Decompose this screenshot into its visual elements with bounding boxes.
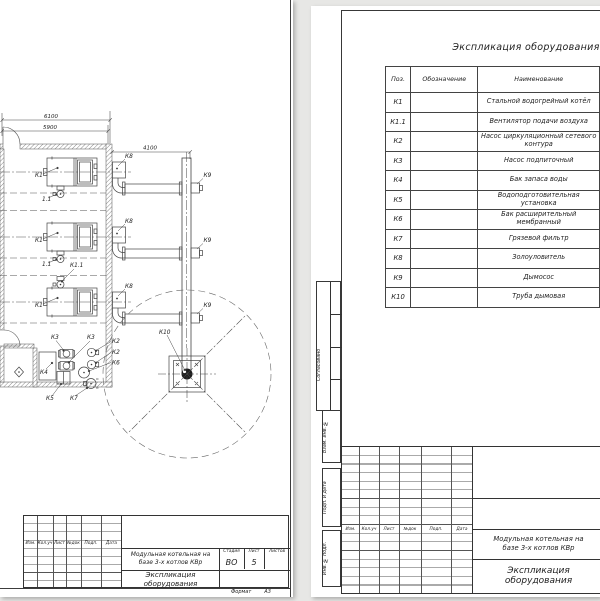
flue-system bbox=[113, 158, 203, 374]
label-k1-1: К1.1 bbox=[70, 263, 83, 269]
spec-name: Труба дымовая bbox=[478, 288, 600, 308]
project-title-line1: Модульная котельная на bbox=[131, 551, 211, 558]
rev-header-list: Лист bbox=[379, 525, 399, 534]
spec-name: Насос подпиточный bbox=[478, 151, 600, 171]
spec-designation bbox=[411, 132, 478, 152]
spec-pos: К2 bbox=[386, 132, 411, 152]
rev-header-podp: Подп. bbox=[421, 525, 451, 534]
doc-title: Экспликация оборудования bbox=[122, 570, 219, 589]
col-header-oboznachenie: Обозначение bbox=[411, 67, 478, 93]
project-title: Модульная котельная на базе 3-х котлов К… bbox=[475, 530, 600, 557]
axis-lines bbox=[0, 152, 187, 348]
dim-5900: 5900 bbox=[43, 125, 57, 131]
dim-6100: 6100 bbox=[44, 114, 58, 120]
label-k2: К2 bbox=[112, 339, 120, 345]
spec-pos: К4 bbox=[386, 171, 411, 191]
spec-pos: К9 bbox=[386, 268, 411, 288]
margin-block-inv-podl: Инв. № подл. bbox=[322, 530, 341, 587]
spec-pos: К5 bbox=[386, 190, 411, 210]
rev-header-ndok: №док bbox=[399, 525, 421, 534]
project-title: Модульная котельная на базе 3-х котлов К… bbox=[122, 549, 219, 569]
spec-table-title: Экспликация оборудования bbox=[426, 42, 600, 53]
spec-row: К9Дымосос bbox=[386, 268, 600, 288]
left-title-block: Изм. Кол.уч Лист №док Подп. Дата Модульн… bbox=[23, 515, 289, 588]
spec-name: Водоподготовительная установка bbox=[478, 190, 600, 210]
chimney bbox=[103, 290, 271, 458]
revision-table: Изм. Кол.уч Лист №док Подп. Дата bbox=[342, 447, 473, 593]
spec-designation bbox=[411, 268, 478, 288]
spec-pos: К8 bbox=[386, 249, 411, 269]
vzam-inv-label: Взам. инв. № bbox=[323, 411, 340, 462]
label-k10: К10 bbox=[159, 330, 171, 336]
spec-row: К3Насос подпиточный bbox=[386, 151, 600, 171]
spec-designation bbox=[411, 249, 478, 269]
spec-designation bbox=[411, 288, 478, 308]
sheets-label: Листов bbox=[264, 548, 290, 556]
margin-block-vzam-inv: Взам. инв. № bbox=[322, 410, 341, 463]
spec-row: К2Насос циркуляционный сетевого контура bbox=[386, 132, 600, 152]
soglasovano-label: Согласовано bbox=[317, 320, 330, 410]
dim-4100: 4100 bbox=[143, 146, 157, 152]
label-k5: К5 bbox=[46, 396, 54, 402]
stage-value: ВО bbox=[219, 556, 244, 570]
spec-pos: К6 bbox=[386, 210, 411, 230]
spec-name: Бак расширительный мембранный bbox=[478, 210, 600, 230]
spec-name: Вентилятор подачи воздуха bbox=[478, 112, 600, 132]
label-fan: 1.1 bbox=[42, 262, 51, 268]
format-label: Формат bbox=[231, 589, 251, 595]
spec-pos: К1.1 bbox=[386, 112, 411, 132]
label-k9: К9 bbox=[204, 173, 212, 179]
podp-data-label: Подп. и дата bbox=[323, 469, 340, 526]
spec-name: Бак запаса воды bbox=[478, 171, 600, 191]
sheet-plan: 6100 5900 4100 bbox=[0, 0, 293, 597]
margin-block-podp-data: Подп. и дата bbox=[322, 468, 341, 527]
spec-pos: К3 bbox=[386, 151, 411, 171]
rev-header-izm: Изм. bbox=[24, 540, 37, 548]
spec-pos: К7 bbox=[386, 229, 411, 249]
rev-header-izm: Изм. bbox=[342, 525, 359, 534]
rev-header-data: Дата bbox=[451, 525, 473, 534]
sheet-label: Лист bbox=[244, 548, 264, 556]
spec-row: К10Труба дымовая bbox=[386, 288, 600, 308]
spec-row: К4Бак запаса воды bbox=[386, 171, 600, 191]
spec-name: Золоуловитель bbox=[478, 249, 600, 269]
project-title-line2: базе 3-х котлов КВр bbox=[503, 544, 575, 552]
revision-table: Изм. Кол.уч Лист №док Подп. Дата bbox=[24, 516, 122, 587]
label-k2: К2 bbox=[112, 350, 120, 356]
drawing-viewer: { "doc_title": "Экспликация оборудования… bbox=[0, 0, 600, 600]
label-k8: К8 bbox=[125, 219, 133, 225]
label-k1: К1 bbox=[35, 303, 43, 309]
doors bbox=[3, 127, 20, 346]
spec-row: К8Золоуловитель bbox=[386, 249, 600, 269]
spec-row: К1.1Вентилятор подачи воздуха bbox=[386, 112, 600, 132]
left-frame-right-border bbox=[290, 0, 291, 597]
plan-drawing: 6100 5900 4100 bbox=[0, 0, 293, 597]
label-k3: К3 bbox=[51, 335, 59, 341]
right-title-block: Изм. Кол.уч Лист №док Подп. Дата Модульн… bbox=[341, 446, 600, 594]
spec-designation bbox=[411, 210, 478, 230]
spec-header-row: Поз. Обозначение Наименование bbox=[386, 67, 600, 93]
spec-pos: К10 bbox=[386, 288, 411, 308]
label-k3: К3 bbox=[87, 335, 95, 341]
label-k8: К8 bbox=[125, 284, 133, 290]
rev-header-ndok: №док bbox=[66, 540, 81, 548]
doc-title: Экспликация оборудования bbox=[475, 560, 600, 592]
label-k1: К1 bbox=[35, 173, 43, 179]
spec-row: К6Бак расширительный мембранный bbox=[386, 210, 600, 230]
stage-label: Стадия bbox=[219, 548, 244, 556]
spec-designation bbox=[411, 229, 478, 249]
spec-pos: К1 bbox=[386, 93, 411, 113]
spec-designation bbox=[411, 190, 478, 210]
label-k1: К1 bbox=[35, 238, 43, 244]
margin-block-soglasovano: Согласовано bbox=[316, 281, 341, 411]
label-k4: К4 bbox=[40, 370, 48, 376]
spec-name: Насос циркуляционный сетевого контура bbox=[478, 132, 600, 152]
rev-header-data: Дата bbox=[101, 540, 122, 548]
rev-header-koluch: Кол.уч bbox=[37, 540, 53, 548]
sheet-spec: Согласовано Взам. инв. № Подп. и дата Ин… bbox=[311, 6, 600, 597]
label-k7: К7 bbox=[70, 396, 78, 402]
spec-row: К1Стальной водогрейный котёл bbox=[386, 93, 600, 113]
inv-podl-label: Инв. № подл. bbox=[323, 531, 340, 586]
label-k8: К8 bbox=[125, 154, 133, 160]
format-note: Формат А3 bbox=[231, 589, 271, 595]
spec-row: К5Водоподготовительная установка bbox=[386, 190, 600, 210]
project-title-line2: базе 3-х котлов КВр bbox=[139, 559, 203, 566]
spec-designation bbox=[411, 171, 478, 191]
dimensions bbox=[1, 111, 192, 159]
rev-header-list: Лист bbox=[53, 540, 66, 548]
spec-name: Стальной водогрейный котёл bbox=[478, 93, 600, 113]
spec-row: К7Грязевой фильтр bbox=[386, 229, 600, 249]
col-header-naimenovanie: Наименование bbox=[478, 67, 600, 93]
tag-labels: К1 К1 К1 1.1 1.1 К1.1 К8 К8 К8 К9 К9 К9 … bbox=[35, 154, 212, 402]
label-fan: 1.1 bbox=[42, 197, 51, 203]
equipment-spec-table: Поз. Обозначение Наименование К1Стальной… bbox=[385, 66, 600, 308]
spec-designation bbox=[411, 112, 478, 132]
spec-designation bbox=[411, 151, 478, 171]
spec-name: Дымосос bbox=[478, 268, 600, 288]
sheet-number: 5 bbox=[244, 556, 264, 570]
rev-header-koluch: Кол.уч bbox=[359, 525, 379, 534]
spec-designation bbox=[411, 93, 478, 113]
label-k9: К9 bbox=[204, 303, 212, 309]
label-k9: К9 bbox=[204, 238, 212, 244]
project-title-line1: Модульная котельная на bbox=[493, 535, 583, 543]
rev-header-podp: Подп. bbox=[81, 540, 101, 548]
format-value: А3 bbox=[264, 589, 271, 595]
label-k6: К6 bbox=[112, 361, 120, 367]
spec-name: Грязевой фильтр bbox=[478, 229, 600, 249]
col-header-pos: Поз. bbox=[386, 67, 411, 93]
